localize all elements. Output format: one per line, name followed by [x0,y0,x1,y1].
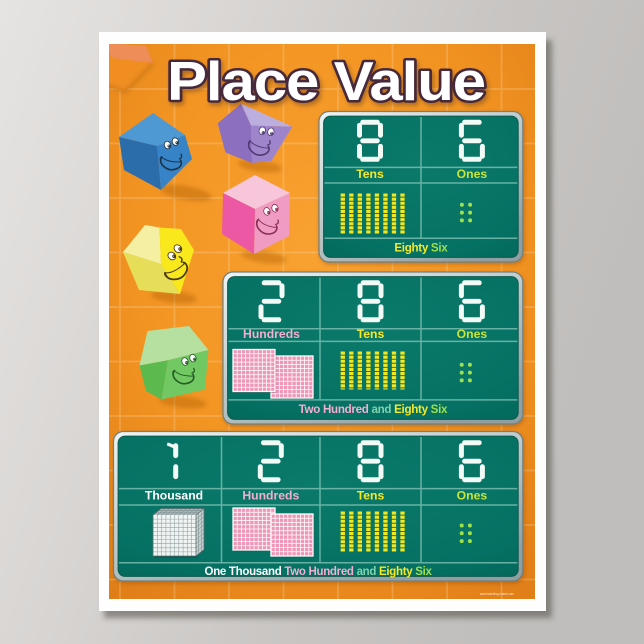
svg-text:Eighty Six: Eighty Six [394,242,448,255]
svg-text:One Thousand Two Hundred and E: One Thousand Two Hundred and Eighty Six [205,566,433,578]
svg-text:Tens: Tens [356,167,384,181]
svg-text:Ones: Ones [457,489,488,503]
svg-text:Tens: Tens [357,489,385,503]
svg-text:Hundreds: Hundreds [242,489,299,503]
svg-text:www.teaching-charts.com: www.teaching-charts.com [480,592,514,596]
svg-text:Place Value: Place Value [167,50,485,112]
svg-text:Hundreds: Hundreds [243,327,300,341]
svg-text:Two Hundred and Eighty Six: Two Hundred and Eighty Six [299,403,448,416]
svg-text:Ones: Ones [457,167,488,181]
svg-text:Tens: Tens [357,327,385,341]
svg-text:Ones: Ones [457,327,488,341]
svg-text:Thousand: Thousand [145,489,203,503]
